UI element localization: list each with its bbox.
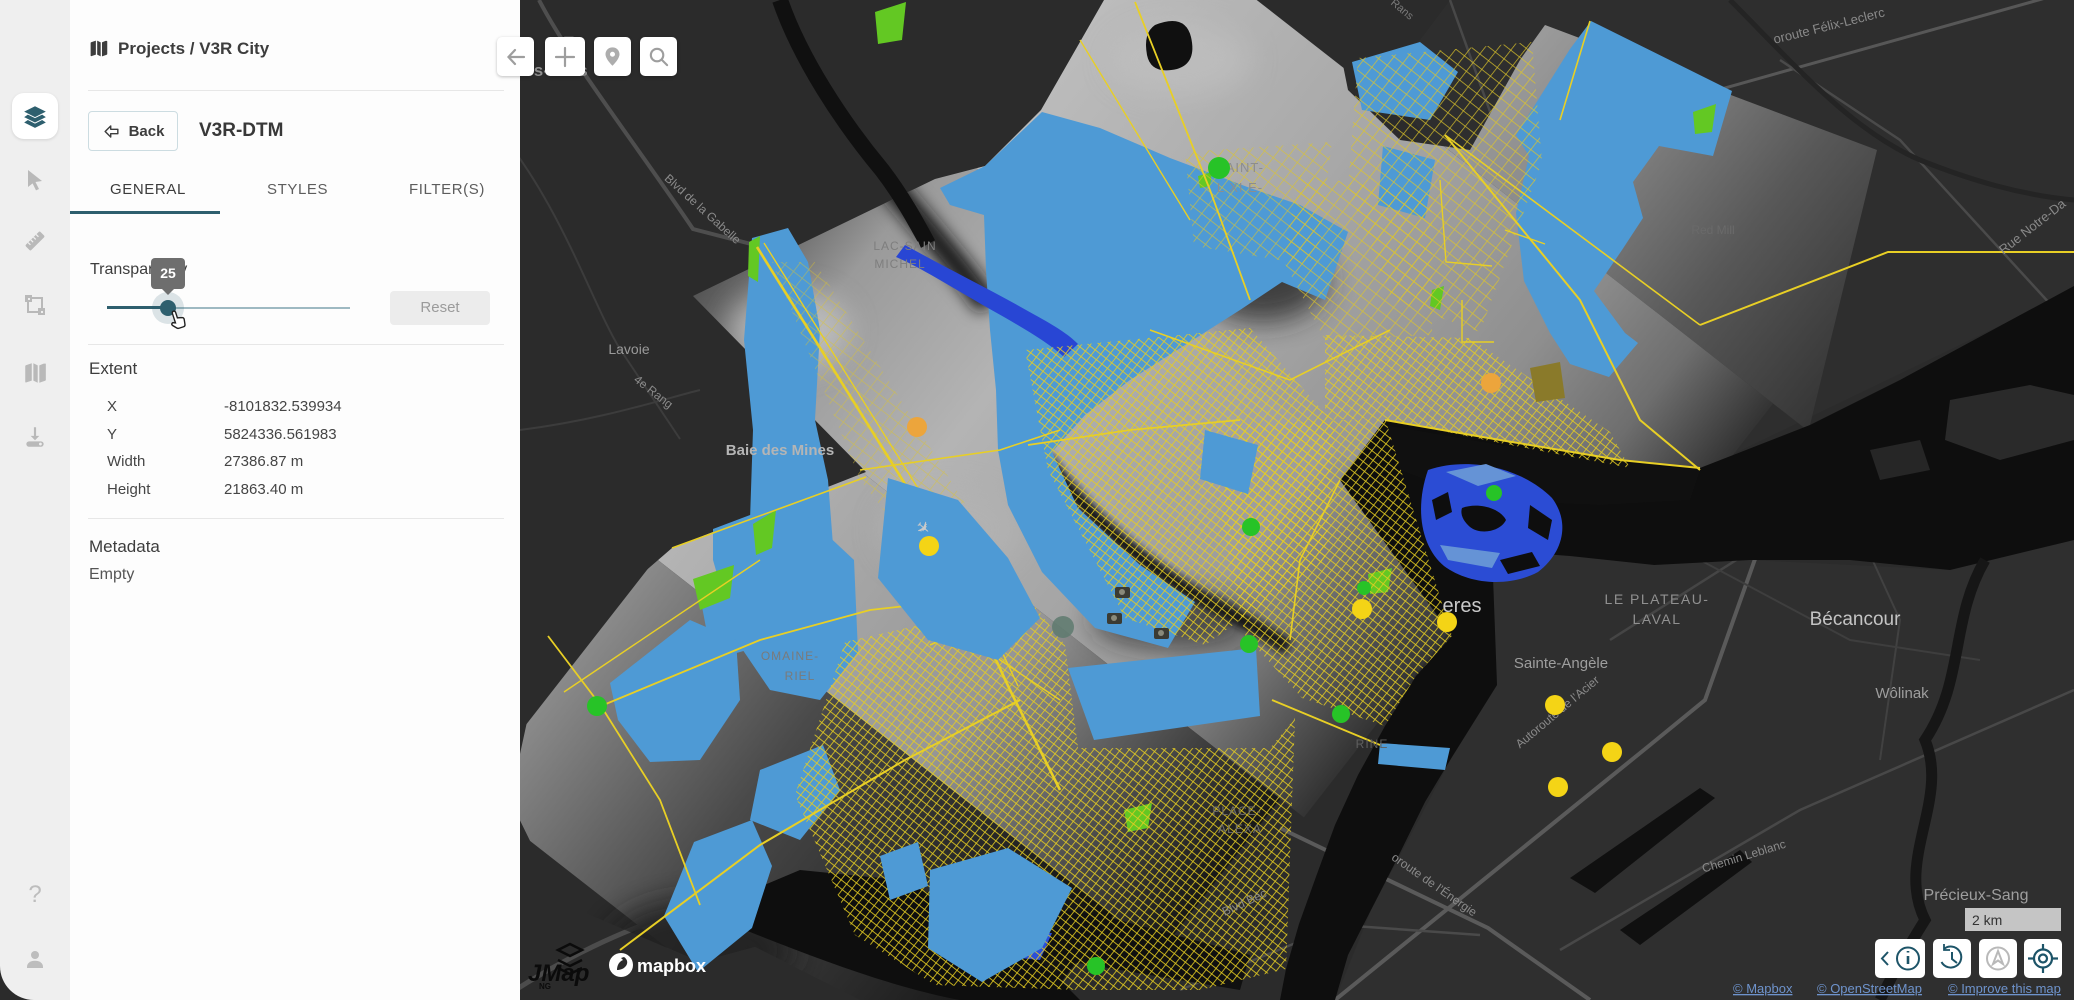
svg-text:2 km: 2 km [1972, 912, 2002, 928]
svg-text:LAVAL: LAVAL [1632, 611, 1681, 627]
svg-text:OMAINE-: OMAINE- [761, 649, 819, 663]
svg-text:Wôlinak: Wôlinak [1875, 685, 1929, 702]
svg-text:© Improve this map: © Improve this map [1948, 981, 2061, 996]
svg-text:© OpenStreetMap: © OpenStreetMap [1817, 981, 1922, 996]
svg-text:Red Mill: Red Mill [1691, 223, 1734, 237]
svg-text:Précieux-Sang: Précieux-Sang [1924, 887, 2029, 904]
svg-text:ALEXA: ALEXA [1218, 822, 1262, 836]
svg-text:Baie des Mines: Baie des Mines [726, 442, 834, 459]
svg-text:L XI E-: L XI E- [1217, 180, 1263, 195]
svg-text:PLACE-: PLACE- [1212, 804, 1261, 818]
svg-text:RINE: RINE [1356, 737, 1389, 751]
svg-text:Lavoie: Lavoie [608, 341, 649, 357]
svg-text:NG: NG [539, 982, 551, 991]
svg-text:© Mapbox: © Mapbox [1733, 981, 1793, 996]
svg-text:Bécancour: Bécancour [1810, 609, 1902, 630]
svg-text:mapbox: mapbox [637, 956, 706, 976]
svg-text:Sainte-Angèle: Sainte-Angèle [1514, 655, 1608, 672]
svg-text:MICHEL: MICHEL [874, 257, 925, 271]
svg-text:LE PLATEAU-: LE PLATEAU- [1605, 591, 1710, 607]
svg-text:JMap: JMap [528, 960, 589, 987]
svg-text:RIEL: RIEL [785, 669, 816, 683]
svg-text:LAC-SAIN: LAC-SAIN [873, 239, 936, 253]
